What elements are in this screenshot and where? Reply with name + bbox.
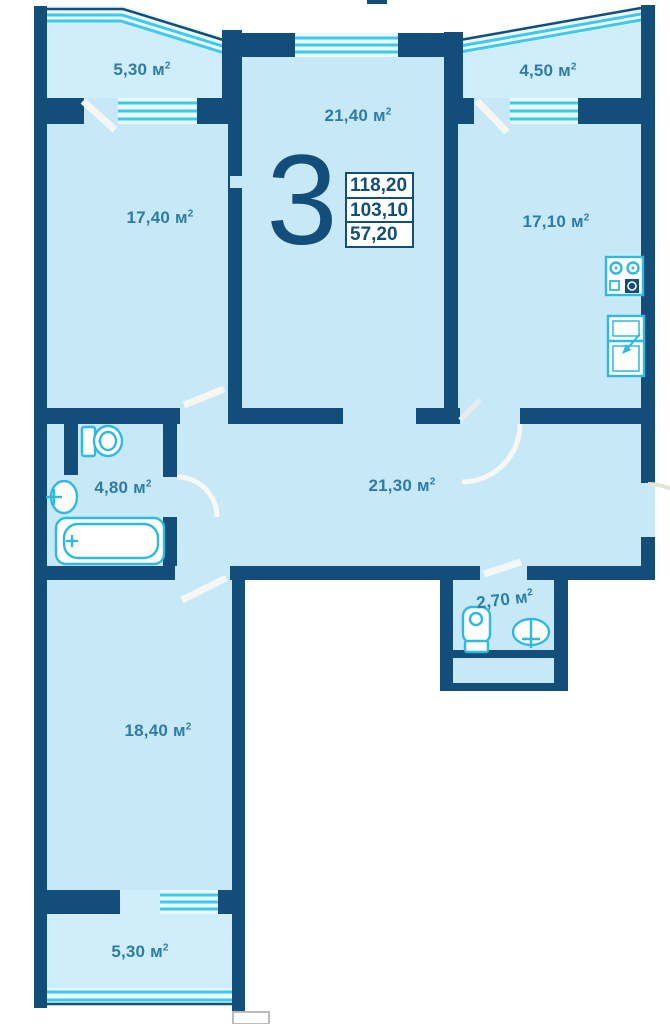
area-value: 18,40 bbox=[124, 721, 168, 740]
wall bbox=[34, 890, 120, 914]
room-area-label-living-middle: 21,40 м2 bbox=[324, 106, 391, 126]
area-unit: м bbox=[571, 212, 584, 231]
area-sup: 2 bbox=[188, 208, 194, 219]
fridge-icon bbox=[608, 316, 644, 376]
area-unit: м bbox=[150, 942, 163, 961]
wall bbox=[34, 408, 180, 424]
wall-bathroom-right bbox=[163, 424, 177, 477]
window-living-middle bbox=[295, 33, 398, 57]
wall bbox=[34, 98, 84, 124]
unit-number: 3 bbox=[266, 137, 337, 265]
wall-niche bbox=[230, 176, 242, 188]
window-living-left bbox=[118, 98, 197, 124]
wall-wc-right bbox=[554, 566, 568, 691]
legend-box bbox=[233, 1012, 269, 1024]
wall bbox=[218, 890, 245, 914]
room-area-label-balcony-top-right: 4,50 м2 bbox=[519, 61, 576, 81]
room-area-label-living-bottom: 18,40 м2 bbox=[124, 721, 191, 741]
floor-plan: 5,30 м2 17,40 м2 21,40 м2 4,50 м2 17,10 … bbox=[0, 0, 670, 1024]
wall bbox=[578, 98, 655, 124]
glazing-bottom bbox=[46, 988, 232, 1004]
area-sup: 2 bbox=[163, 942, 169, 953]
wall bbox=[398, 33, 458, 57]
stat-total-area: 118,20 bbox=[345, 172, 414, 199]
toilet-icon bbox=[82, 426, 122, 456]
area-value: 17,40 bbox=[126, 208, 170, 227]
window-living-bottom bbox=[160, 890, 218, 914]
area-sup: 2 bbox=[571, 61, 577, 72]
area-value: 5,30 bbox=[111, 942, 145, 961]
wall bbox=[197, 98, 242, 124]
area-unit: м bbox=[417, 476, 430, 495]
area-sup: 2 bbox=[386, 106, 392, 117]
area-value: 17,10 bbox=[522, 212, 566, 231]
area-sup: 2 bbox=[146, 478, 152, 489]
area-value: 5,30 bbox=[113, 60, 147, 79]
area-unit: м bbox=[558, 61, 571, 80]
entrance-opening bbox=[641, 483, 655, 537]
room-area-label-living-left: 17,40 м2 bbox=[126, 208, 193, 228]
wall bbox=[228, 33, 295, 57]
wall-exterior-left bbox=[34, 6, 47, 1008]
area-sup: 2 bbox=[527, 587, 534, 599]
area-value: 2,70 bbox=[475, 589, 511, 612]
bathtub-icon bbox=[56, 518, 164, 564]
room-area-label-balcony-bottom: 5,30 м2 bbox=[111, 942, 168, 962]
wall-wc-left bbox=[440, 566, 453, 691]
wall bbox=[527, 566, 655, 580]
wall-bathroom-stub bbox=[64, 424, 78, 475]
wall-mark-top bbox=[367, 0, 387, 4]
area-unit: м bbox=[173, 721, 186, 740]
wall-wc-bottom bbox=[440, 683, 568, 691]
wall bbox=[444, 98, 474, 124]
area-value: 21,40 bbox=[324, 106, 368, 125]
stat-living-area: 103,10 bbox=[345, 197, 414, 224]
room-area-label-kitchen: 17,10 м2 bbox=[522, 212, 589, 232]
area-sup: 2 bbox=[186, 721, 192, 732]
unit-stats: 118,20 103,10 57,20 bbox=[345, 172, 414, 248]
area-sup: 2 bbox=[430, 476, 436, 487]
room-fills bbox=[46, 10, 655, 1004]
area-sup: 2 bbox=[584, 212, 590, 223]
area-unit: м bbox=[175, 208, 188, 227]
room-area-label-hallway: 21,30 м2 bbox=[368, 476, 435, 496]
area-value: 4,50 bbox=[519, 61, 553, 80]
wall-middle-left bbox=[228, 33, 242, 424]
wall-bottom-right bbox=[232, 566, 245, 1012]
wall bbox=[228, 408, 343, 424]
area-unit: м bbox=[152, 60, 165, 79]
area-value: 4,80 bbox=[94, 478, 128, 497]
stat-room-area: 57,20 bbox=[345, 221, 414, 248]
room-area-label-balcony-top-left: 5,30 м2 bbox=[113, 60, 170, 80]
wall bbox=[416, 408, 460, 424]
area-value: 21,30 bbox=[368, 476, 412, 495]
room-area-label-bathroom: 4,80 м2 bbox=[94, 478, 151, 498]
wall bbox=[520, 408, 655, 424]
wc-toilet-icon bbox=[463, 607, 490, 652]
living-left-floor bbox=[46, 98, 228, 424]
area-sup: 2 bbox=[165, 60, 171, 71]
wall bbox=[34, 566, 175, 580]
window-kitchen bbox=[510, 98, 578, 124]
area-unit: м bbox=[373, 106, 386, 125]
area-unit: м bbox=[133, 478, 146, 497]
stove-icon bbox=[606, 257, 643, 295]
